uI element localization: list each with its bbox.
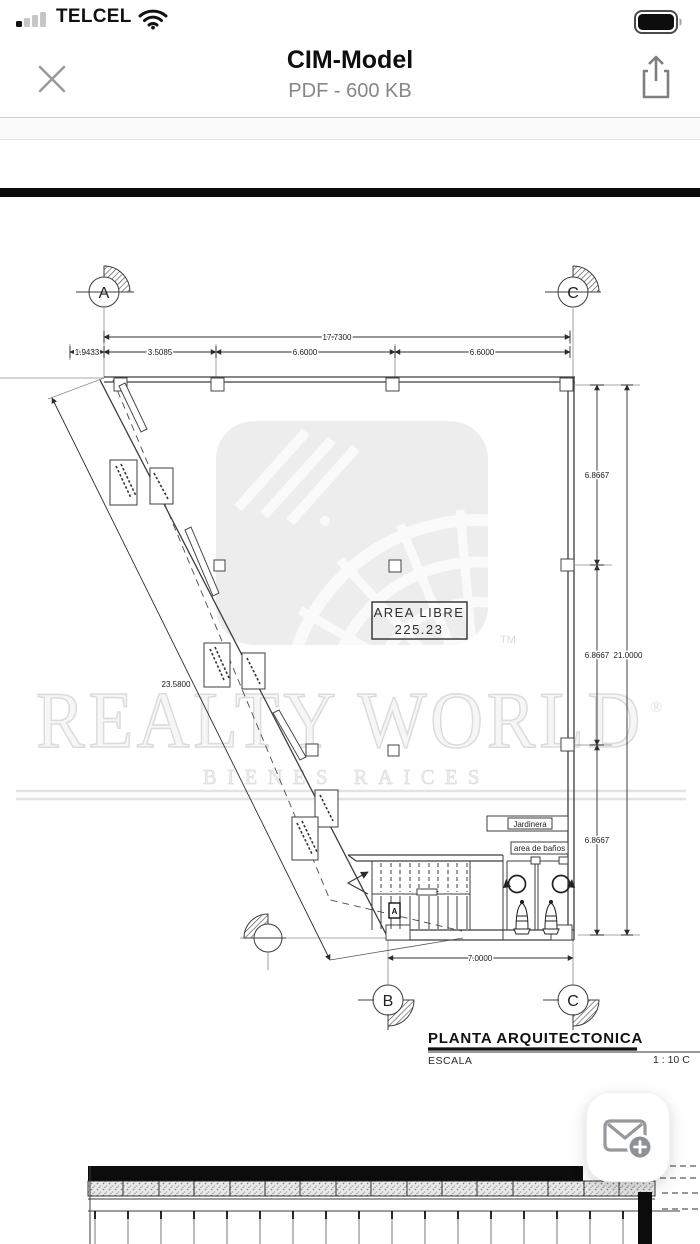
watermark-registered: ® <box>650 699 662 716</box>
watermark-dot <box>320 516 330 526</box>
email-compose-button[interactable] <box>586 1092 670 1182</box>
grid-label-b: B <box>383 993 394 1010</box>
toilet-icons <box>514 900 559 934</box>
area-value: 225.23 <box>395 622 444 637</box>
extension-lines <box>0 308 640 986</box>
dim-right-mid: 6.8667 <box>585 651 610 660</box>
leader-dashes <box>660 1166 698 1209</box>
dim-seg3: 6.6000 <box>293 348 318 357</box>
floor-plan: A <box>0 266 700 1067</box>
watermark-rule <box>16 791 686 799</box>
plan-title: PLANTA ARQUITECTONICA <box>428 1030 643 1047</box>
area-label: AREA LIBRE <box>374 605 465 620</box>
scale-value: 1 : 10 C <box>653 1054 690 1066</box>
grid-label-a: A <box>99 285 110 302</box>
dim-total-top: 17.7300 <box>323 333 352 342</box>
stairs <box>348 855 507 940</box>
jardinera-label: Jardinera <box>513 820 547 829</box>
grid-label-c-top: C <box>567 285 579 302</box>
watermark-brand: REALTY WORLD <box>36 677 644 765</box>
bathrooms: Jardinera area de baños <box>487 816 575 934</box>
dim-right-total: 21.0000 <box>614 651 643 660</box>
stair-section-label: A <box>392 907 398 916</box>
watermark-tm: TM <box>500 634 516 646</box>
dim-seg2: 3.5085 <box>148 348 173 357</box>
scale-label: ESCALA <box>428 1055 472 1067</box>
title-block: PLANTA ARQUITECTONICA ESCALA 1 : 10 C <box>428 1030 700 1067</box>
dim-seg4: 6.6000 <box>470 348 495 357</box>
phone-screen: TELCEL CIM-Model PDF - 600 KB <box>0 0 700 1244</box>
door-swing-icons <box>509 876 570 893</box>
dim-diagonal: 23.5800 <box>162 680 191 689</box>
banos-label: area de baños <box>514 844 565 853</box>
dim-right-bottom: 6.8667 <box>585 836 610 845</box>
leader-line <box>330 938 463 960</box>
pdf-canvas[interactable]: TM REALTY WORLD ® BIENES RAICES <box>0 0 700 1244</box>
grid-label-c-bottom: C <box>567 993 579 1010</box>
email-plus-icon <box>602 1114 654 1160</box>
dim-right-top: 6.8667 <box>585 471 610 480</box>
watermark-tagline: BIENES RAICES <box>203 765 490 789</box>
dim-bottom: 7.0000 <box>468 954 493 963</box>
dim-seg1: 1.9433 <box>75 348 100 357</box>
